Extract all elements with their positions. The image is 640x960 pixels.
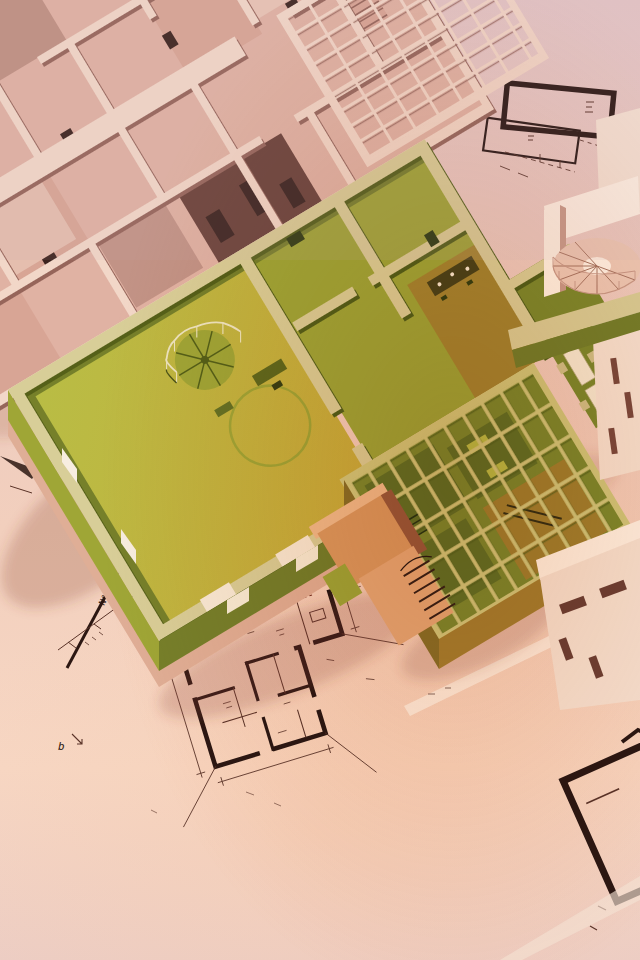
top-tint-overlay — [0, 0, 640, 260]
svg-text:b: b — [58, 740, 65, 753]
architectural-model-photo: N°2 b — [0, 0, 640, 960]
